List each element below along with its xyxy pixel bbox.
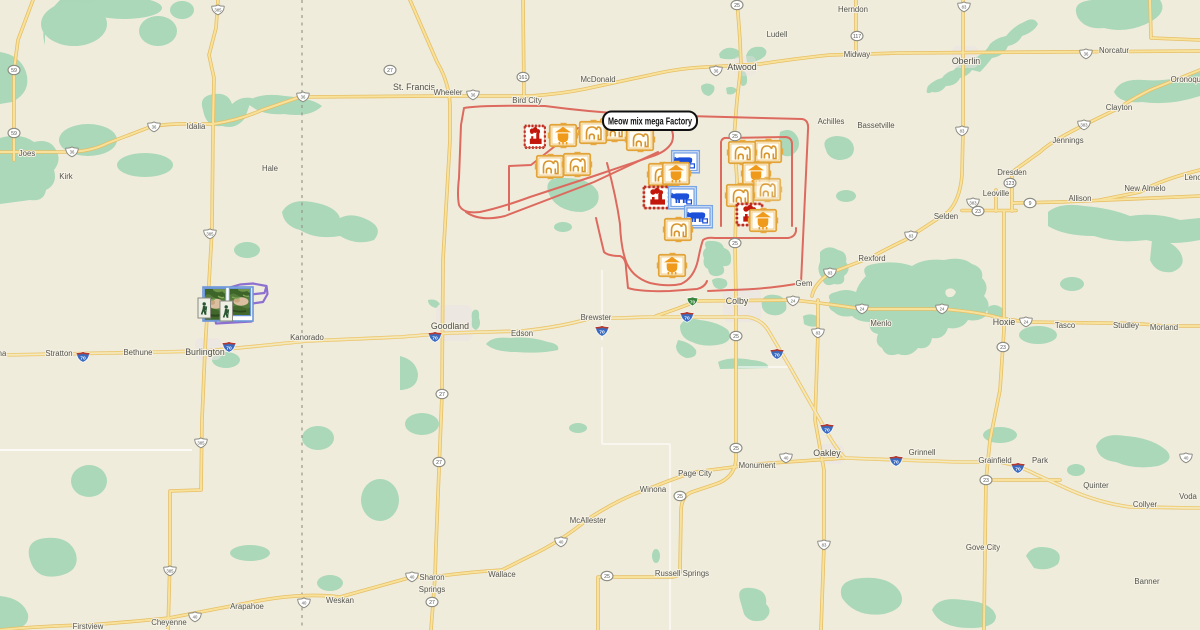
svg-text:Grinnell: Grinnell (909, 448, 936, 457)
svg-text:Voda: Voda (1179, 492, 1197, 501)
svg-text:25: 25 (734, 3, 740, 9)
svg-text:Stratton: Stratton (45, 349, 72, 358)
svg-text:New Almelo: New Almelo (1124, 184, 1166, 193)
svg-text:36: 36 (70, 150, 75, 155)
svg-text:40: 40 (784, 456, 789, 461)
svg-text:83: 83 (962, 5, 967, 10)
svg-text:Jennings: Jennings (1052, 136, 1083, 145)
svg-text:383: 383 (969, 201, 977, 206)
svg-text:Russell Springs: Russell Springs (655, 569, 709, 578)
svg-text:40: 40 (559, 540, 564, 545)
svg-text:Gove City: Gove City (966, 543, 1000, 552)
svg-text:Brewster: Brewster (581, 313, 612, 322)
svg-text:Studley: Studley (1113, 321, 1139, 330)
svg-text:na: na (0, 349, 7, 358)
svg-text:Kanorado: Kanorado (290, 333, 324, 342)
svg-text:Kirk: Kirk (59, 172, 73, 181)
svg-text:Atwood: Atwood (727, 62, 756, 72)
svg-text:385: 385 (197, 441, 205, 446)
svg-text:Collyer: Collyer (1133, 500, 1158, 509)
svg-text:Meow mix mega Factory: Meow mix mega Factory (608, 117, 692, 128)
svg-text:83: 83 (960, 129, 965, 134)
svg-text:36: 36 (714, 69, 719, 74)
svg-text:27: 27 (387, 68, 393, 74)
svg-text:385: 385 (166, 569, 174, 574)
svg-text:27: 27 (439, 392, 445, 398)
svg-text:40: 40 (302, 601, 307, 606)
svg-text:Weskan: Weskan (326, 596, 354, 605)
svg-text:23: 23 (983, 478, 989, 484)
svg-text:Bethune: Bethune (123, 348, 152, 357)
svg-text:Grainfield: Grainfield (978, 456, 1011, 465)
svg-text:25: 25 (733, 446, 739, 452)
svg-text:Oberlin: Oberlin (952, 56, 980, 66)
svg-text:40: 40 (193, 615, 198, 620)
svg-text:23: 23 (1000, 345, 1006, 351)
svg-text:40: 40 (410, 575, 415, 580)
svg-text:Achilles: Achilles (818, 117, 845, 126)
svg-text:Edson: Edson (511, 329, 533, 338)
svg-text:Winona: Winona (640, 485, 667, 494)
svg-text:Bird City: Bird City (512, 96, 542, 105)
svg-text:Ludell: Ludell (767, 30, 788, 39)
svg-text:Allison: Allison (1069, 194, 1092, 203)
svg-text:Burlington: Burlington (185, 347, 225, 357)
svg-text:Gem: Gem (796, 279, 813, 288)
svg-text:Arapahoe: Arapahoe (230, 602, 264, 611)
svg-text:36: 36 (471, 93, 476, 98)
svg-text:Leno: Leno (1184, 173, 1200, 182)
svg-text:83: 83 (909, 234, 914, 239)
svg-text:McAllester: McAllester (570, 516, 607, 525)
svg-text:St. Francis: St. Francis (393, 82, 436, 92)
svg-text:Morland: Morland (1150, 323, 1178, 332)
svg-text:27: 27 (436, 460, 442, 466)
svg-text:Dresden: Dresden (997, 168, 1026, 177)
svg-text:25: 25 (732, 134, 738, 140)
svg-text:24: 24 (940, 307, 945, 312)
svg-text:24: 24 (1024, 320, 1029, 325)
svg-text:59: 59 (11, 131, 17, 137)
svg-text:123: 123 (1006, 181, 1015, 187)
svg-text:Goodland: Goodland (431, 321, 469, 331)
svg-text:24: 24 (860, 307, 865, 312)
svg-text:23: 23 (975, 209, 981, 215)
svg-text:Banner: Banner (1134, 577, 1160, 586)
svg-text:27: 27 (429, 600, 435, 606)
svg-text:Hoxie: Hoxie (993, 317, 1016, 327)
svg-text:117: 117 (853, 34, 861, 40)
svg-text:36: 36 (301, 95, 306, 100)
svg-text:Bassetville: Bassetville (857, 121, 894, 130)
svg-text:25: 25 (733, 334, 739, 340)
svg-text:Rexford: Rexford (858, 254, 885, 263)
svg-text:Hale: Hale (262, 164, 278, 173)
svg-text:25: 25 (732, 241, 738, 247)
svg-text:Midway: Midway (844, 50, 871, 59)
svg-text:83: 83 (816, 331, 821, 336)
svg-text:36: 36 (1084, 52, 1089, 57)
svg-text:9: 9 (1029, 201, 1032, 207)
svg-text:Cheyenne: Cheyenne (151, 618, 187, 627)
svg-text:Joes: Joes (19, 149, 36, 158)
svg-text:McDonald: McDonald (580, 75, 615, 84)
svg-text:Colby: Colby (726, 296, 749, 306)
svg-text:Norcatur: Norcatur (1099, 46, 1129, 55)
svg-text:385: 385 (214, 8, 222, 13)
svg-text:59: 59 (11, 68, 17, 74)
svg-text:Tasco: Tasco (1055, 321, 1076, 330)
svg-text:Leoville: Leoville (983, 189, 1009, 198)
svg-text:25: 25 (677, 494, 683, 500)
svg-text:Wallace: Wallace (488, 570, 515, 579)
svg-text:Clayton: Clayton (1106, 103, 1132, 112)
svg-text:Selden: Selden (934, 212, 958, 221)
svg-text:Oronoque: Oronoque (1171, 75, 1200, 84)
svg-text:Idalia: Idalia (187, 122, 206, 131)
svg-text:Herndon: Herndon (838, 5, 868, 14)
svg-text:Sharon: Sharon (419, 573, 444, 582)
svg-text:383: 383 (1080, 123, 1088, 128)
svg-text:Page City: Page City (678, 469, 712, 478)
svg-text:Monument: Monument (739, 461, 777, 470)
svg-text:Firstview: Firstview (73, 622, 104, 630)
svg-text:Park: Park (1032, 456, 1048, 465)
svg-text:25: 25 (604, 574, 610, 580)
svg-text:Springs: Springs (419, 585, 446, 594)
svg-text:83: 83 (828, 271, 833, 276)
svg-text:36: 36 (152, 125, 157, 130)
svg-text:Menlo: Menlo (870, 319, 892, 328)
svg-text:Wheeler: Wheeler (433, 88, 462, 97)
svg-text:40: 40 (1184, 456, 1189, 461)
svg-text:Quinter: Quinter (1083, 481, 1109, 490)
svg-text:Oakley: Oakley (813, 448, 841, 458)
svg-text:24: 24 (791, 299, 796, 304)
svg-text:161: 161 (519, 75, 528, 81)
svg-text:385: 385 (206, 232, 214, 237)
svg-text:83: 83 (822, 543, 827, 548)
